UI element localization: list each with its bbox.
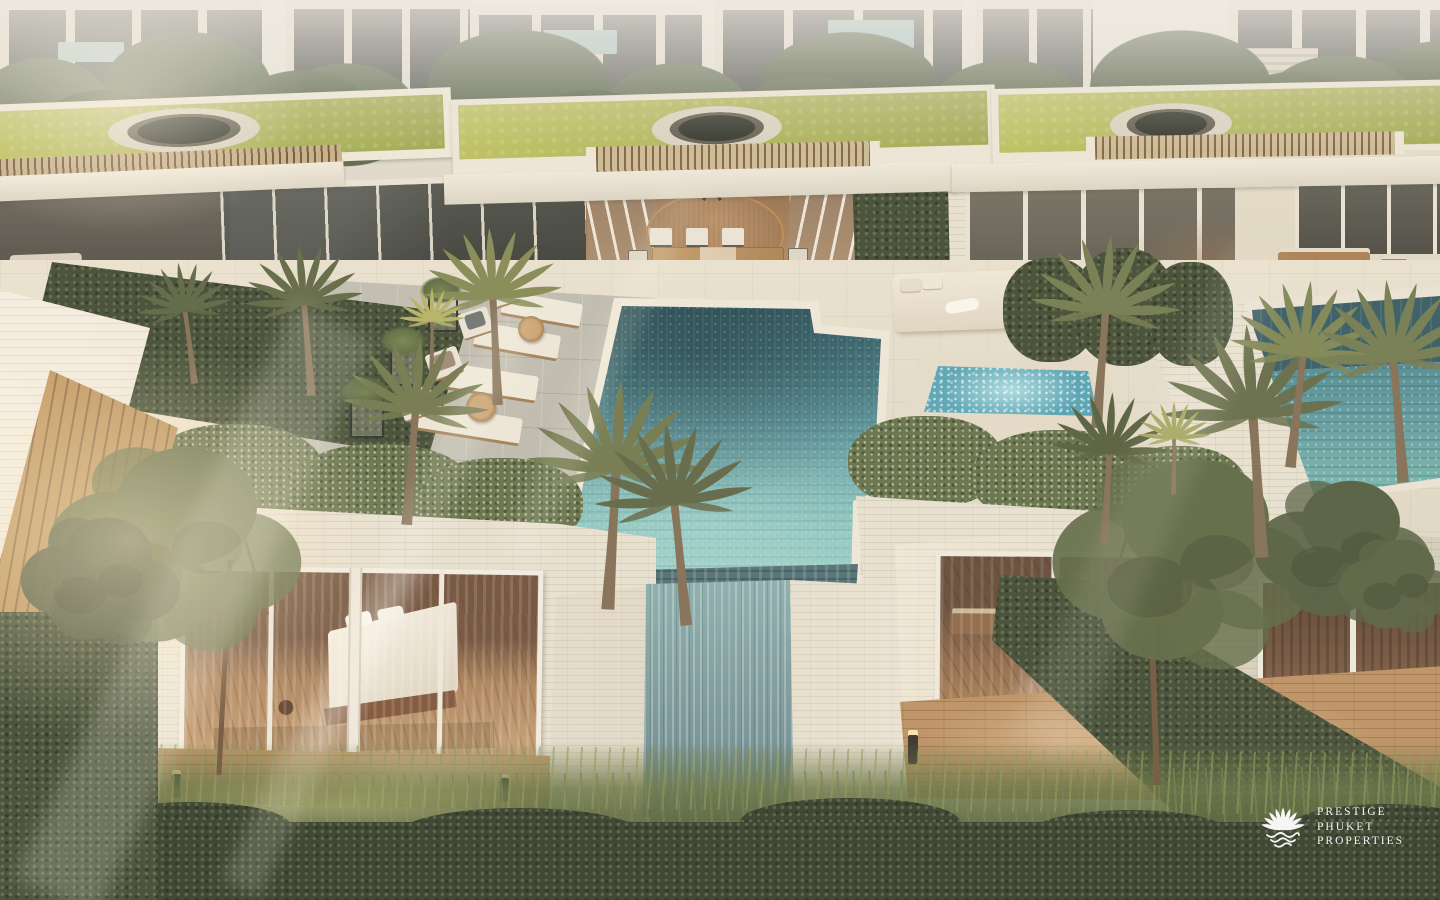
brand-line-2: PHUKET: [1317, 820, 1404, 835]
brand-line-1: PRESTIGE: [1317, 805, 1404, 820]
brand-shell-icon: [1258, 802, 1308, 852]
brand-name: PRESTIGE PHUKET PROPERTIES: [1317, 805, 1404, 849]
brand-line-3: PROPERTIES: [1317, 834, 1404, 849]
watermark: PRESTIGE PHUKET PROPERTIES: [1258, 802, 1404, 852]
warm-tint: [0, 0, 1440, 900]
villa-aerial-render: PRESTIGE PHUKET PROPERTIES: [0, 0, 1440, 900]
